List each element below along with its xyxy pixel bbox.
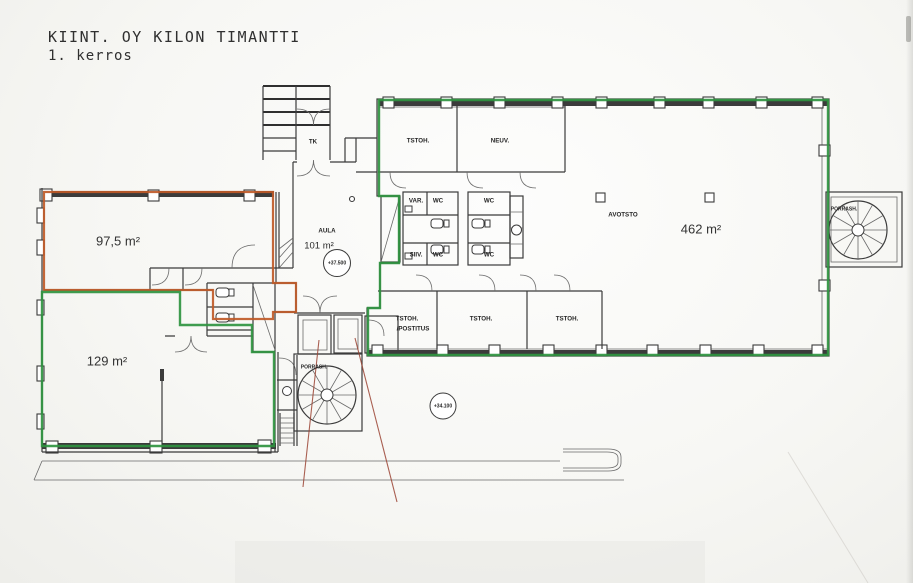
- level-mark-entrance: +37.500: [328, 260, 346, 266]
- room-label-tstoh-postitus-2: /POSTITUS: [397, 326, 430, 333]
- room-label-neuv: NEUV.: [491, 138, 509, 145]
- right-stairwell: [826, 192, 902, 267]
- title-block: KIINT. OY KILON TIMANTTI 1. kerros: [48, 28, 301, 64]
- room-label-aula: AULA: [318, 228, 335, 235]
- drawing-title: KIINT. OY KILON TIMANTTI: [48, 28, 301, 46]
- floor-plan-drawing: [0, 0, 913, 583]
- unit-b-area-label: 129 m²: [87, 354, 127, 369]
- room-label-avotsto: AVOTSTO: [608, 212, 637, 219]
- room-label-siiv: SIIV.: [410, 252, 423, 259]
- room-label-porrash-right: PORRASH.: [831, 206, 857, 212]
- level-mark-lower: +34.100: [434, 403, 452, 409]
- scan-crease: [788, 452, 868, 583]
- unit-b-walls: [42, 352, 278, 453]
- room-label-porrash-lower: PORRASH.: [301, 364, 327, 370]
- room-label-tstoh-top: TSTOH.: [407, 138, 430, 145]
- leader-lines: [303, 338, 397, 502]
- scan-bottom-band: [235, 541, 705, 583]
- drawing-subtitle: 1. kerros: [48, 48, 301, 64]
- unit-a-area-label: 97,5 m²: [96, 234, 140, 249]
- room-label-tk: TK: [309, 139, 317, 146]
- sanitary-core-right: [381, 192, 523, 265]
- room-label-var: VAR.: [409, 198, 423, 205]
- room-label-tstoh-postitus-1: TSTOH.: [396, 316, 419, 323]
- open-office-area-label: 462 m²: [681, 222, 721, 237]
- floor-plan-page: KIINT. OY KILON TIMANTTI 1. kerros 97,5 …: [0, 0, 913, 583]
- room-label-tstoh-b3: TSTOH.: [556, 316, 579, 323]
- scan-edge-shade: [906, 0, 913, 583]
- exterior-walkway: [34, 449, 624, 480]
- tenant-boundary-green-left: [42, 292, 274, 446]
- room-label-wc-1: WC: [433, 198, 443, 205]
- room-area-aula: 101 m²: [304, 241, 334, 252]
- room-label-tstoh-b2: TSTOH.: [470, 316, 493, 323]
- room-label-wc-4: WC: [484, 252, 494, 259]
- room-label-wc-3: WC: [433, 252, 443, 259]
- room-label-wc-2: WC: [484, 198, 494, 205]
